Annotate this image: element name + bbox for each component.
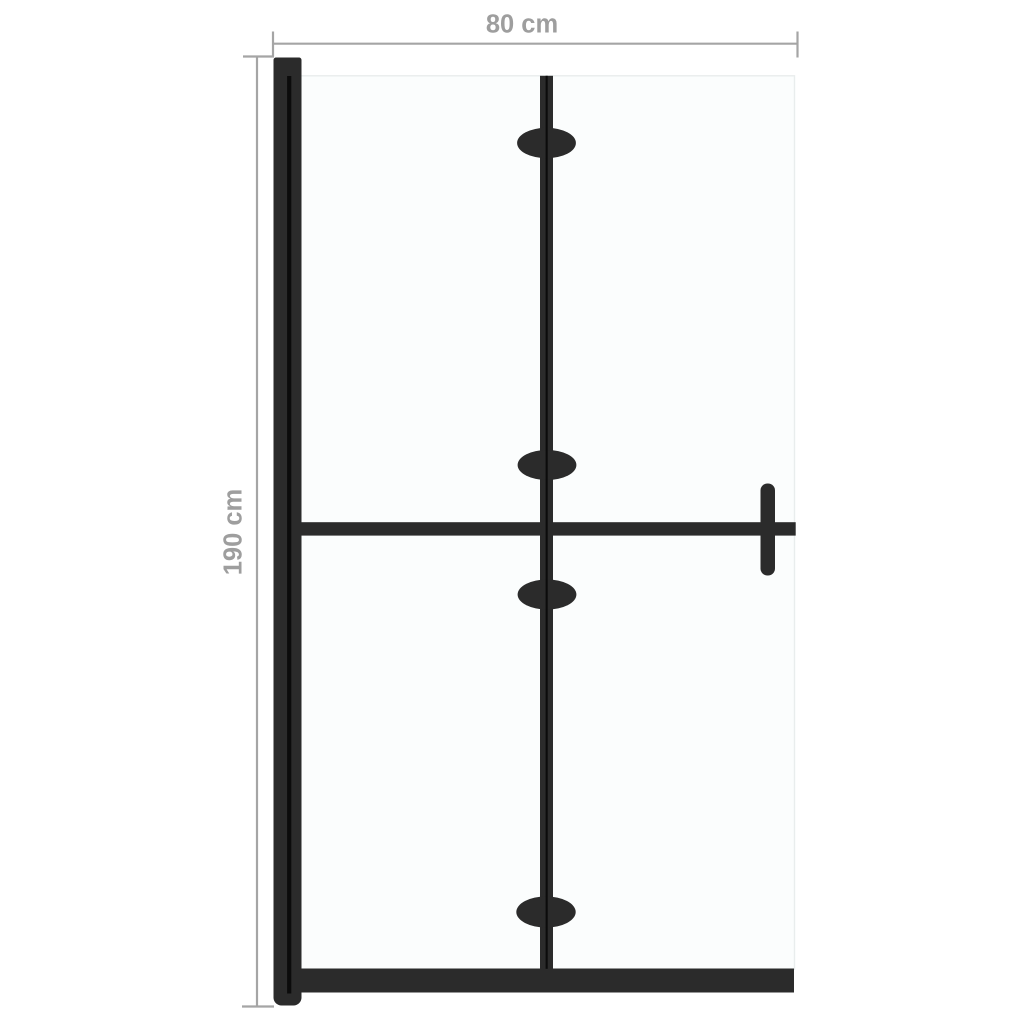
svg-text:80 cm: 80 cm — [486, 11, 558, 39]
svg-text:190 cm: 190 cm — [220, 489, 248, 576]
